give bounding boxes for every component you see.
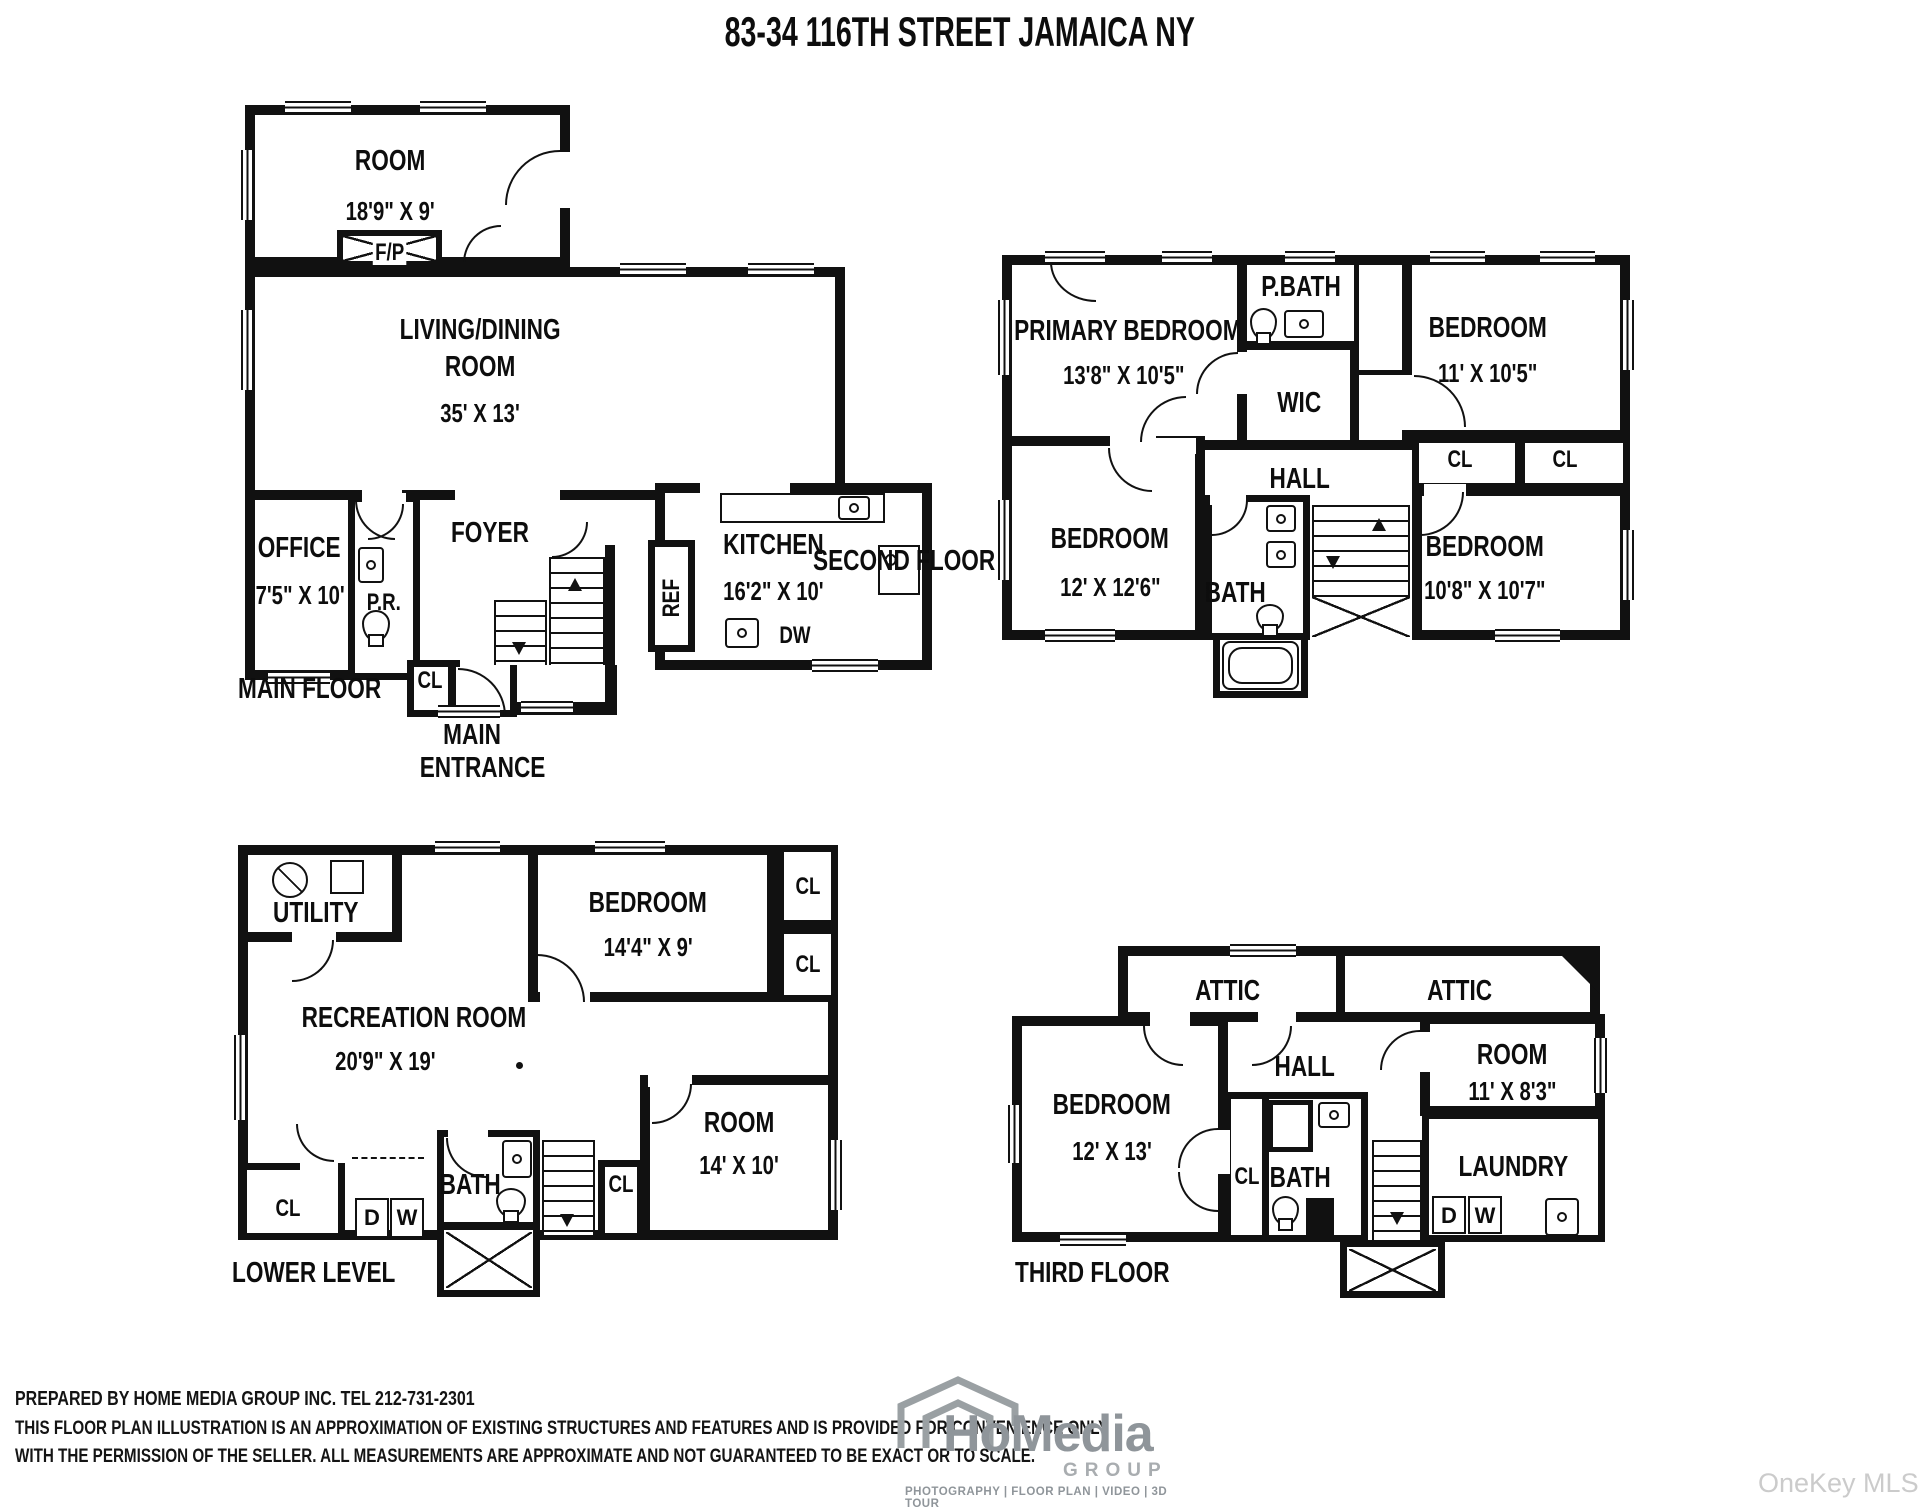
utility-tank-icon xyxy=(330,860,364,894)
chase-wall xyxy=(1306,1198,1334,1236)
dishwasher-label: DW xyxy=(770,623,820,648)
lower-level-label: LOWER LEVEL xyxy=(232,1258,452,1288)
stairs-down-arrow-icon xyxy=(512,642,526,655)
office-dims: 7'5" X 10' xyxy=(240,582,360,609)
washer-label: W xyxy=(397,1205,418,1230)
room-label: ROOM xyxy=(245,146,535,176)
closet1-label: CL xyxy=(1412,447,1507,472)
window xyxy=(1430,251,1485,264)
onekey-mls-watermark: OneKey MLS xyxy=(1758,1468,1919,1499)
window xyxy=(285,101,351,114)
door-opening xyxy=(300,1161,338,1172)
laundry-label: LAUNDRY xyxy=(1422,1152,1605,1182)
dryer-label: D xyxy=(364,1205,380,1230)
window xyxy=(812,659,878,672)
logo-services-text: PHOTOGRAPHY | FLOOR PLAN | VIDEO | 3D TO… xyxy=(905,1486,1205,1510)
lower-closet1-label: CL xyxy=(779,874,836,899)
logo-group-text: GROUP xyxy=(1063,1460,1168,1482)
third-dryer-label: D xyxy=(1441,1203,1457,1228)
unfinished-wall-line xyxy=(352,1157,424,1159)
floor-plan-canvas: 83-34 116TH STREET JAMAICA NY ROOM 18'9" xyxy=(0,0,1925,1504)
third-room-dims: 11' X 8'3" xyxy=(1412,1078,1612,1105)
laundry-sink-icon xyxy=(1545,1198,1579,1236)
kitchen-sink-icon xyxy=(838,496,870,520)
kitchen-dims: 16'2" X 10' xyxy=(683,578,863,605)
second-floor-label: SECOND FLOOR xyxy=(813,546,1003,576)
bath2-sink2-icon xyxy=(1266,541,1296,568)
utility-label: UTILITY xyxy=(241,898,391,928)
bath-divider-wall xyxy=(444,1222,533,1230)
living-dims: 35' X 13' xyxy=(330,400,630,427)
dryer-box: D xyxy=(355,1198,389,1238)
window xyxy=(435,841,500,854)
wic-label: WIC xyxy=(1247,388,1351,418)
third-stairs xyxy=(1372,1140,1422,1240)
attic1-label: ATTIC xyxy=(1128,976,1328,1006)
lower-bath-label: BATH xyxy=(410,1170,530,1200)
room-dims: 18'9" X 9' xyxy=(245,198,535,225)
fireplace-label: F/P xyxy=(355,240,425,265)
window xyxy=(234,1035,247,1120)
entrance-label-1: MAIN xyxy=(412,720,532,750)
window xyxy=(620,263,686,276)
door-opening xyxy=(558,152,572,208)
fridge-label: REF xyxy=(648,545,695,650)
bedroom2-label: BEDROOM xyxy=(1380,313,1595,343)
shower-icon xyxy=(1268,1100,1313,1152)
pr-sink-icon xyxy=(358,547,384,583)
lower-room-label: ROOM xyxy=(629,1108,849,1138)
stairs-down-arrow-icon xyxy=(560,1214,574,1227)
window xyxy=(1045,629,1115,642)
footer-prepared-by: PREPARED BY HOME MEDIA GROUP INC. TEL 21… xyxy=(15,1388,590,1411)
stairs-down xyxy=(494,600,547,665)
lower-closet4-label: CL xyxy=(596,1172,646,1197)
bath2-label: BATH xyxy=(1185,578,1285,608)
hall-label: HALL xyxy=(1245,464,1355,494)
powder-room-label: P.R. xyxy=(348,590,420,615)
window xyxy=(1162,251,1212,264)
bath2-sink-icon xyxy=(1266,505,1296,532)
foyer-opening xyxy=(455,488,560,502)
third-washer-label: W xyxy=(1475,1203,1496,1228)
living-label-1: LIVING/DINING xyxy=(330,315,630,345)
third-hall-label: HALL xyxy=(1250,1052,1360,1082)
window xyxy=(1285,251,1335,264)
foyer-label: FOYER xyxy=(430,518,550,548)
bedroom4-label: BEDROOM xyxy=(1375,532,1595,562)
stairs-up-arrow-icon xyxy=(568,578,582,591)
column-dot xyxy=(516,1062,523,1069)
bedroom4-dims: 10'8" X 10'7" xyxy=(1375,577,1595,604)
window xyxy=(241,310,254,390)
page-title-text: 83-34 116TH STREET JAMAICA NY xyxy=(725,10,1195,54)
bedroom2-dims: 11' X 10'5" xyxy=(1380,360,1595,387)
page-title: 83-34 116TH STREET JAMAICA NY xyxy=(480,10,1440,54)
washer-box: W xyxy=(390,1198,424,1238)
window xyxy=(1621,300,1634,370)
third-bath-sink-icon xyxy=(1318,1102,1350,1128)
third-room-label: ROOM xyxy=(1412,1040,1612,1070)
door-opening xyxy=(1258,1012,1296,1026)
stairs-up-arrow-icon xyxy=(1372,518,1386,531)
stairs-down-arrow-icon xyxy=(1326,556,1340,569)
window xyxy=(420,101,486,114)
primary-bedroom-label: PRIMARY BEDROOM xyxy=(982,316,1265,346)
door-opening xyxy=(1150,1012,1190,1026)
home-media-group-logo: HoMedia GROUP PHOTOGRAPHY | FLOOR PLAN |… xyxy=(885,1372,1205,1500)
office-label: OFFICE xyxy=(242,533,357,563)
closet2-label: CL xyxy=(1520,447,1610,472)
third-floor-label: THIRD FLOOR xyxy=(1015,1258,1235,1288)
pbath-sink-icon xyxy=(1284,310,1324,338)
crawl-space-hatch xyxy=(446,1232,532,1288)
door-arc xyxy=(552,522,588,558)
recreation-label: RECREATION ROOM xyxy=(270,1003,510,1033)
window xyxy=(1621,530,1634,600)
stairs-down-arrow-icon xyxy=(1390,1212,1404,1225)
lower-bedroom-label: BEDROOM xyxy=(533,888,763,918)
lower-closet3-label: CL xyxy=(240,1196,335,1221)
attic2-label: ATTIC xyxy=(1360,976,1560,1006)
landing-side-wall xyxy=(605,665,617,715)
attic-divider-wall xyxy=(1336,946,1345,1022)
stairs-up xyxy=(549,557,605,665)
utility-motor-icon xyxy=(272,862,308,898)
lower-room-dims: 14' X 10' xyxy=(629,1152,849,1179)
window xyxy=(521,701,573,714)
third-dryer-box: D xyxy=(1432,1196,1466,1234)
primary-bedroom-dims: 13'8" X 10'5" xyxy=(982,362,1265,389)
entrance-label-2: ENTRANCE xyxy=(402,753,542,783)
window xyxy=(748,263,814,276)
bathtub-icon xyxy=(1222,641,1299,690)
stair-side-wall xyxy=(605,545,615,670)
stair-bump-hatch xyxy=(1349,1249,1436,1291)
logo-wordmark: HoMedia xyxy=(943,1404,1153,1464)
living-label-2: ROOM xyxy=(330,352,630,382)
main-living-dining-walls xyxy=(245,267,845,500)
main-floor-label: MAIN FLOOR xyxy=(238,674,458,704)
window xyxy=(595,841,665,854)
third-bedroom-dims: 12' X 13' xyxy=(1002,1138,1222,1165)
lower-bedroom-dims: 14'4" X 9' xyxy=(533,934,763,961)
window xyxy=(1540,251,1595,264)
lower-closet2-label: CL xyxy=(779,952,836,977)
third-washer-box: W xyxy=(1468,1196,1502,1234)
kitchen-sink2-icon xyxy=(725,618,759,648)
third-bath-label: BATH xyxy=(1250,1163,1350,1193)
pbath-label: P.BATH xyxy=(1244,272,1358,302)
bedroom3-label: BEDROOM xyxy=(1000,524,1220,554)
third-bedroom-walls xyxy=(1012,1016,1228,1242)
window xyxy=(1230,944,1296,957)
third-bedroom-label: BEDROOM xyxy=(1002,1090,1222,1120)
window xyxy=(1060,1233,1126,1246)
recreation-dims: 20'9" X 19' xyxy=(265,1048,505,1075)
window xyxy=(1495,629,1560,642)
